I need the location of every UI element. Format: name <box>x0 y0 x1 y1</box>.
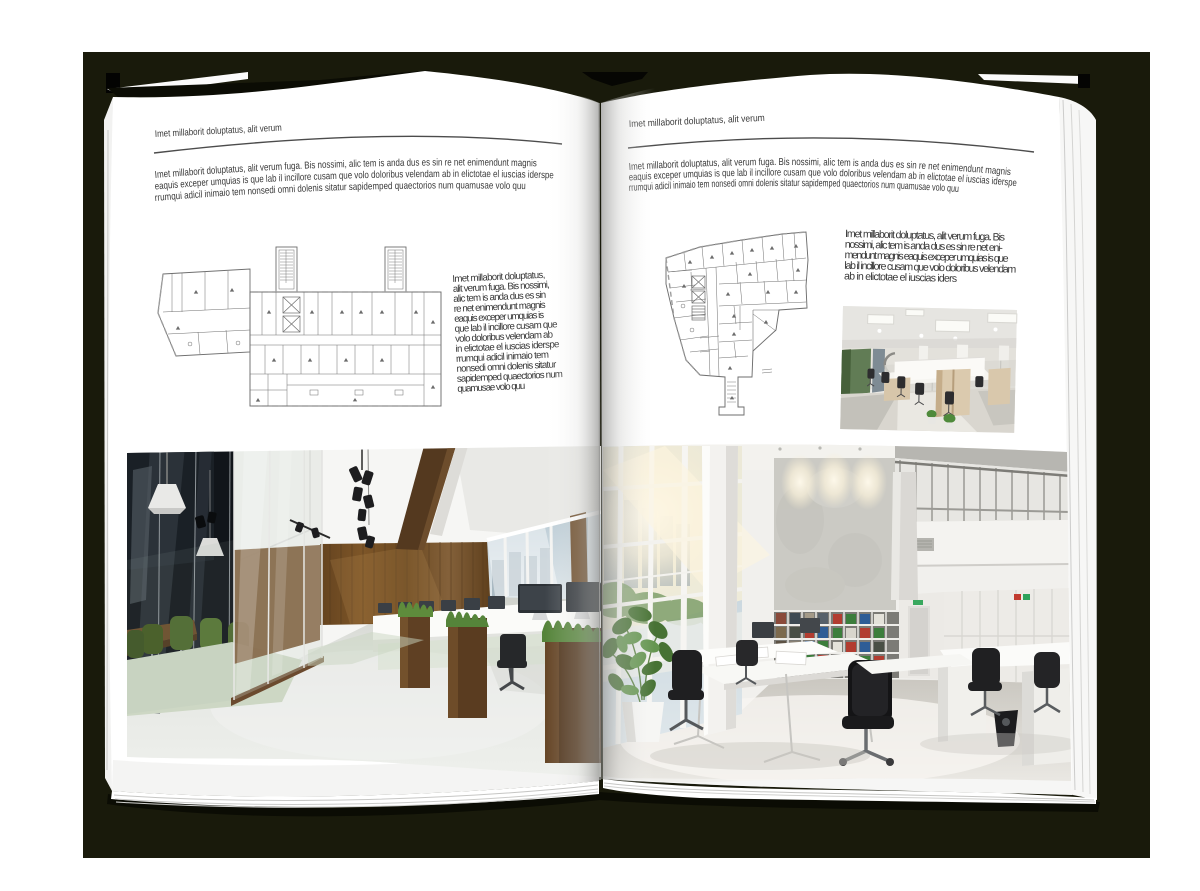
svg-text:ab in elictotae el iuscias ide: ab in elictotae el iuscias iders <box>844 270 957 285</box>
